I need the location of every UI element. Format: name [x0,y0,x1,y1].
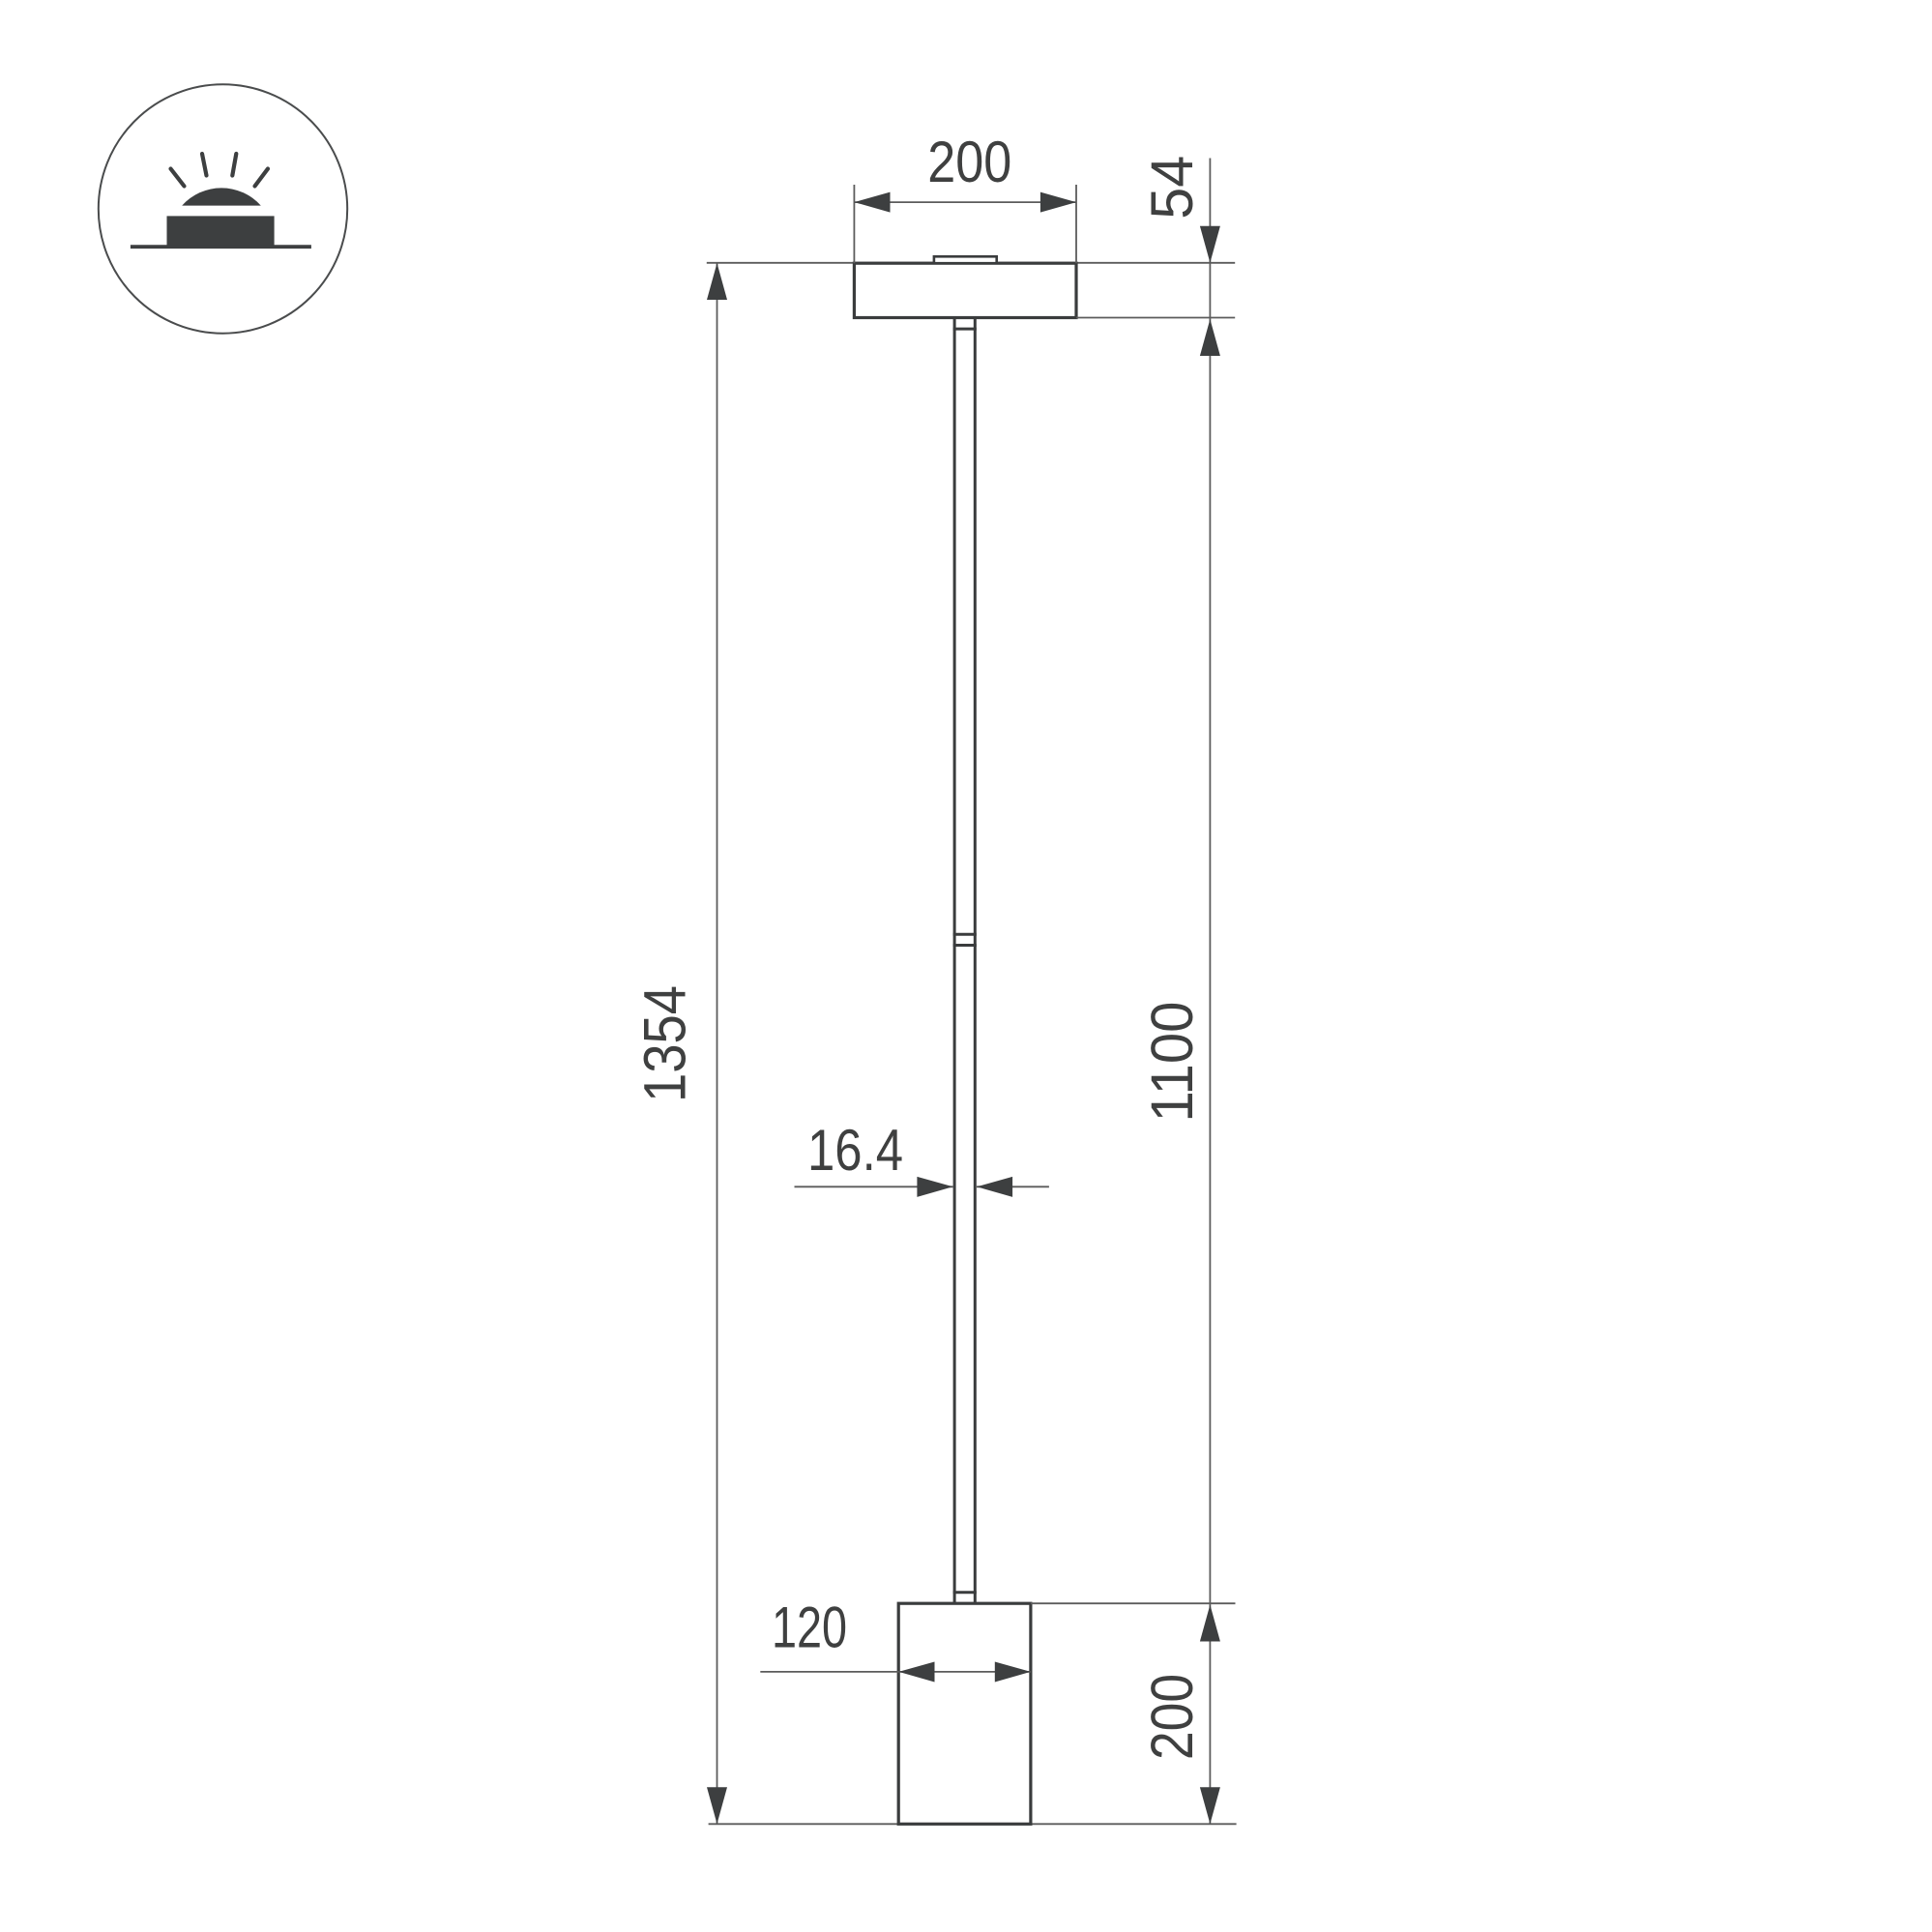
svg-text:200: 200 [1139,1674,1205,1760]
svg-text:1100: 1100 [1139,1002,1205,1123]
svg-text:200: 200 [927,130,1011,194]
svg-text:1354: 1354 [632,985,698,1102]
svg-text:54: 54 [1139,156,1205,220]
svg-text:120: 120 [772,1595,847,1660]
svg-text:16.4: 16.4 [807,1118,903,1183]
